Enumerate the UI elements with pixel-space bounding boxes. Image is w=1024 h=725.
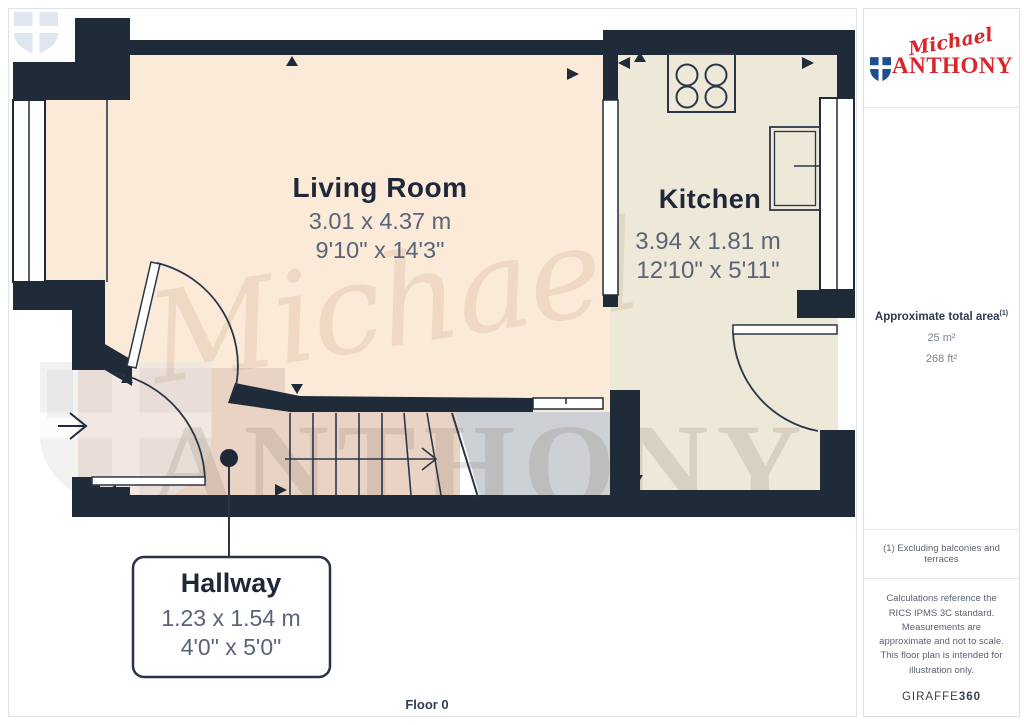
- giraffe360-brand: GIRAFFE360: [876, 689, 1007, 706]
- info-sidebar: Michael ANTHONY Approximate total area(1…: [863, 8, 1020, 717]
- living-room-label: Living Room: [292, 172, 467, 203]
- agency-name-caps: ANTHONY: [892, 53, 1013, 79]
- brand-suffix: 360: [959, 691, 981, 703]
- disclaimer-section: Calculations reference the RICS IPMS 3C …: [864, 578, 1019, 716]
- total-area-title-text: Approximate total area: [875, 311, 1000, 323]
- agency-logo: Michael ANTHONY: [864, 9, 1019, 108]
- agency-shield-icon: [870, 57, 891, 82]
- total-area-metric: 25 m²: [864, 332, 1019, 344]
- living-room-metric: 3.01 x 4.37 m: [309, 208, 451, 234]
- watermark-shield-small-icon: [14, 12, 58, 54]
- kitchen-imperial: 12'10" x 5'11": [636, 257, 779, 284]
- hallway-metric: 1.23 x 1.54 m: [161, 605, 300, 631]
- total-area-imperial: 268 ft²: [864, 353, 1019, 365]
- total-area-title: Approximate total area(1): [864, 310, 1019, 323]
- hallway-imperial: 4'0" x 5'0": [181, 634, 282, 660]
- floor-label: Floor 0: [405, 697, 448, 712]
- living-room-imperial: 9'10" x 14'3": [316, 237, 445, 263]
- kitchen-label: Kitchen: [659, 184, 762, 214]
- callout-anchor-dot: [220, 449, 238, 467]
- hallway-label: Hallway: [181, 568, 282, 598]
- living-room-bay-floor: [45, 100, 107, 282]
- total-area-note-ref: (1): [1000, 310, 1009, 317]
- brand-name: GIRAFFE: [902, 691, 959, 703]
- disclaimer-text: Calculations reference the RICS IPMS 3C …: [876, 592, 1007, 678]
- total-area-section: Approximate total area(1) 25 m² 268 ft²: [864, 108, 1019, 529]
- kitchen-metric: 3.94 x 1.81 m: [635, 228, 780, 255]
- area-footnote: (1) Excluding balconies and terraces: [864, 529, 1019, 578]
